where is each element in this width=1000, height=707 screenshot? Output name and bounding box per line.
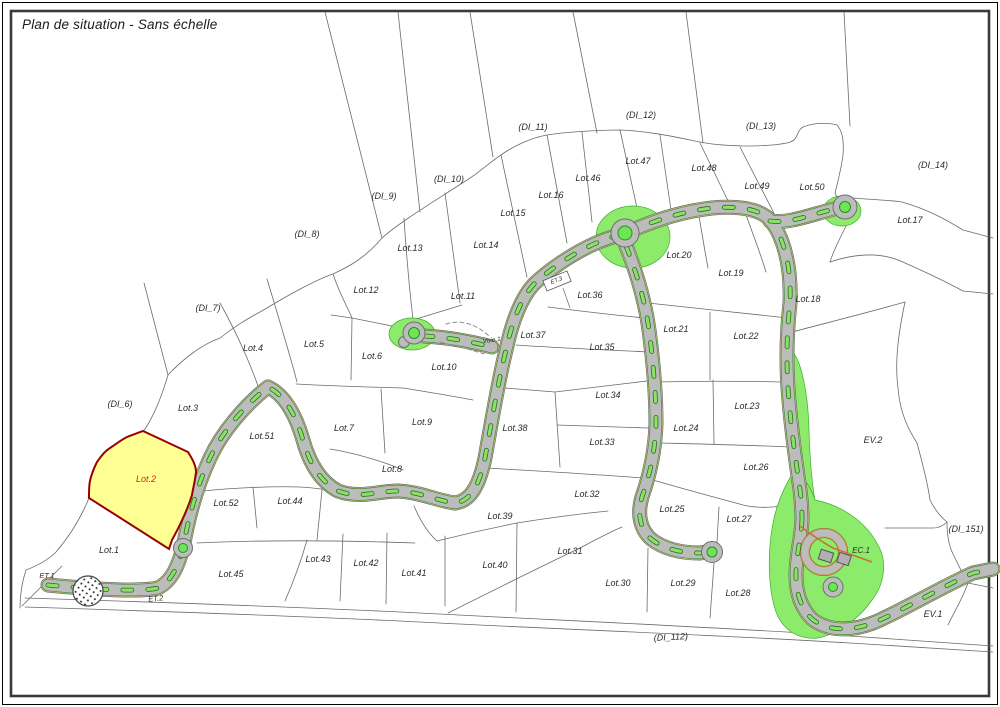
map-label: Lot.46: [575, 173, 600, 183]
map-label: Lot.22: [733, 331, 758, 341]
roundabout-culdesac-south: [702, 542, 723, 563]
map-label: Lot.11: [451, 291, 475, 301]
map-label: ET.2: [148, 593, 165, 604]
map-label: Lot.40: [482, 560, 507, 570]
map-label: Lot.8: [382, 464, 402, 474]
map-label: (DI_12): [626, 110, 656, 120]
et1-hatched-circle: [73, 576, 103, 606]
map-label: Lot.20: [666, 250, 691, 260]
map-label: Lot.19: [718, 268, 743, 278]
map-label: Lot.38: [502, 423, 527, 433]
map-label: Lot.29: [670, 578, 695, 588]
map-label: Lot.1: [99, 545, 119, 555]
map-label: (DI_10): [434, 174, 464, 184]
map-label: Lot.24: [673, 423, 698, 433]
map-label: Lot.37: [520, 330, 546, 340]
map-label: Lot.16: [538, 190, 563, 200]
map-label: Lot.51: [249, 431, 274, 441]
map-label: EC.1: [852, 546, 870, 555]
map-label: Lot.36: [577, 290, 602, 300]
map-label: Lot.21: [663, 324, 688, 334]
map-label: Lot.2: [136, 474, 156, 484]
map-label: Lot.17: [897, 215, 923, 225]
map-label: Lot.14: [473, 240, 498, 250]
roundabout-culdesac-west: [403, 322, 425, 344]
map-label: Lot.27: [726, 514, 752, 524]
map-label: Lot.43: [305, 554, 330, 564]
map-label: Lot.45: [218, 569, 244, 579]
map-label: (DI_7): [195, 303, 220, 313]
roundabout-west: [174, 539, 193, 558]
map-label: Lot.5: [304, 339, 325, 349]
map-label: Lot.39: [487, 511, 512, 521]
map-label: Lot.23: [734, 401, 759, 411]
map-label: Lot.48: [691, 163, 716, 173]
map-label: Lot.28: [725, 588, 750, 598]
map-label: Lot.33: [589, 437, 614, 447]
map-label: Lot.6: [362, 351, 382, 361]
site-plan-page: Plan de situation - Sans échelle: [0, 0, 1000, 707]
map-label: Lot.44: [277, 496, 302, 506]
map-label: Lot.13: [397, 243, 422, 253]
map-label: Lot.10: [431, 362, 456, 372]
map-label: Lot.7: [334, 423, 355, 433]
roundabout-top: [611, 219, 639, 247]
map-label: Lot.49: [744, 181, 769, 191]
map-label: Lot.41: [401, 568, 426, 578]
plan-title: Plan de situation - Sans échelle: [22, 17, 218, 32]
map-label: Lot.3: [178, 403, 198, 413]
map-label: Lot.50: [799, 182, 824, 192]
map-label: Lot.9: [412, 417, 432, 427]
map-label: (DI_9): [371, 191, 396, 201]
map-label: Lot.15: [500, 208, 526, 218]
roundabout-culdesac-ne: [833, 195, 857, 219]
map-label: Lot.34: [595, 390, 620, 400]
map-label: EV.2: [864, 435, 883, 445]
map-label: Lot.32: [574, 489, 599, 499]
map-label: Lot.26: [743, 462, 768, 472]
map-label: (DI_151): [948, 524, 983, 534]
map-label: Lot.25: [659, 504, 685, 514]
map-label: (DI_11): [518, 122, 547, 132]
map-label: Lot.18: [795, 294, 820, 304]
map-label: EV.1: [924, 609, 943, 619]
map-label: Lot.31: [557, 546, 582, 556]
roundabout-ec1: [823, 577, 843, 597]
map-label: Lot.52: [213, 498, 238, 508]
map-label: Lot.4: [243, 343, 263, 353]
site-plan-map: (DI_11)(DI_12)(DI_13)(DI_14)(DI_10)(DI_9…: [0, 0, 1000, 707]
map-label: Lot.47: [625, 156, 651, 166]
map-label: Lot.42: [353, 558, 378, 568]
map-label: Lot.35: [589, 342, 615, 352]
map-label: Lot.12: [353, 285, 378, 295]
map-label: (DI_8): [294, 229, 319, 239]
map-label: (DI_14): [918, 160, 948, 170]
map-label: (DI_112): [653, 631, 688, 643]
map-label: Lot.30: [605, 578, 630, 588]
map-label: ET.1: [39, 571, 54, 580]
map-label: (DI_13): [746, 121, 776, 131]
map-label: (DI_6): [107, 399, 132, 409]
